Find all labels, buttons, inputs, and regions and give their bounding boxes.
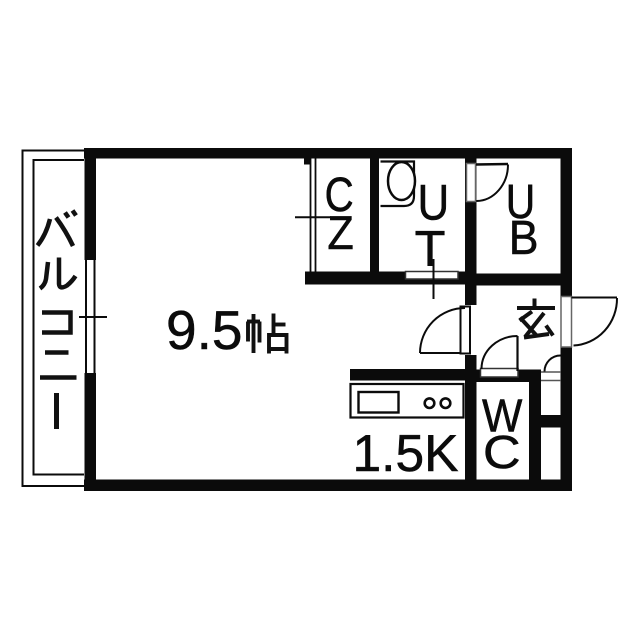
svg-text:B: B — [509, 211, 539, 265]
svg-text:Z: Z — [327, 206, 353, 259]
svg-text:1.5K: 1.5K — [353, 424, 459, 482]
svg-text:9.5: 9.5 — [166, 299, 242, 361]
svg-text:T: T — [415, 220, 446, 277]
svg-text:C: C — [483, 427, 521, 479]
